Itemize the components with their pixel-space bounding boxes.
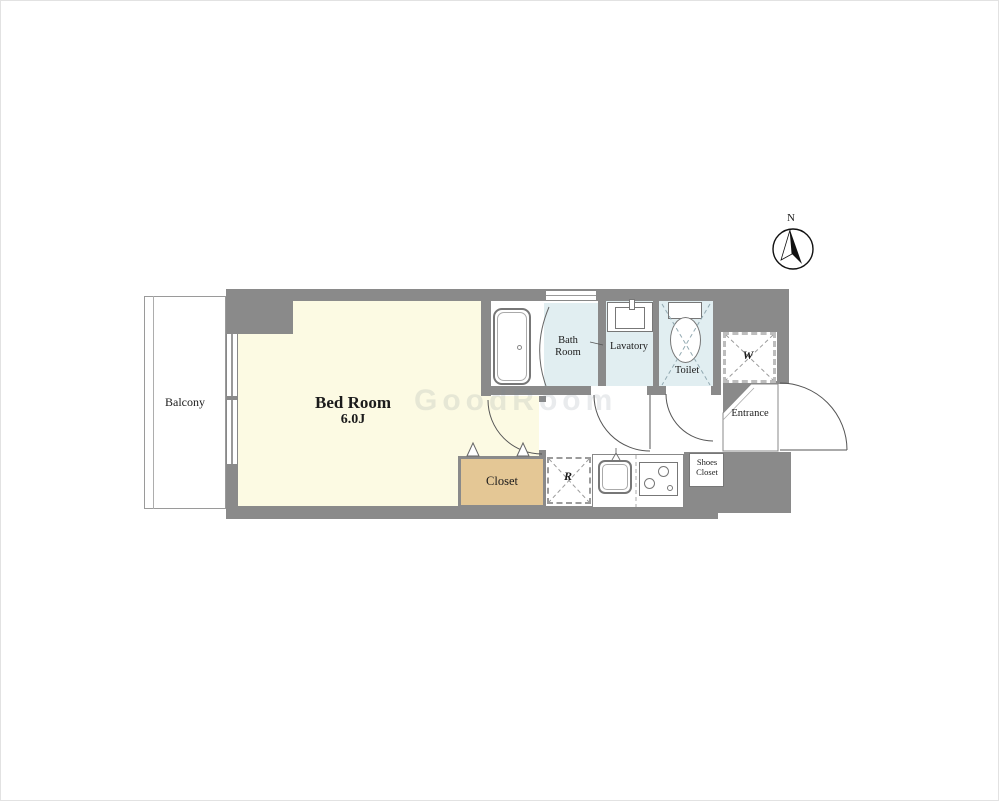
balcony-label: Balcony [147,396,223,409]
floorplan-canvas: GoodRoom Balcony Bed Room 6.0J Bath Room… [0,0,999,801]
bedroom-size-label: 6.0J [293,412,413,428]
wall-toilet-right [713,301,721,391]
toilet-label: Toilet [661,365,713,377]
compass-north-label: N [781,212,801,224]
bathroom-window [546,290,596,301]
refrigerator-label: R [557,470,579,483]
bedroom-window-mid-tick [226,396,238,400]
stove-burner-left [644,478,655,489]
entrance-label: Entrance [720,408,780,420]
toilet-bowl [670,317,701,363]
north-compass-icon [773,229,813,269]
lavatory-sink-basin [615,307,645,329]
wall-top [226,289,789,301]
entrance-door-arc [780,383,847,450]
wall-bedroom-notch [226,289,293,334]
wall-top-right-block [718,301,789,332]
lavatory-faucet [629,299,635,310]
washer-label: W [737,349,759,362]
bathtub-inner [497,312,527,381]
stove-burner-right [658,466,669,477]
bedroom-name-label: Bed Room [293,393,413,412]
wall-right [777,332,789,384]
closet-label: Closet [466,474,538,488]
wall-bath-left [481,301,491,396]
kitchen-sink-inner [602,464,628,490]
bathtub-drain [517,345,522,350]
stove-knob [667,485,673,491]
bathroom-label: Bath Room [544,335,592,359]
lavatory-label: Lavatory [603,341,655,353]
watermark-text: GoodRoom [414,384,734,418]
shoes-closet-label: Shoes Closet [690,458,724,477]
